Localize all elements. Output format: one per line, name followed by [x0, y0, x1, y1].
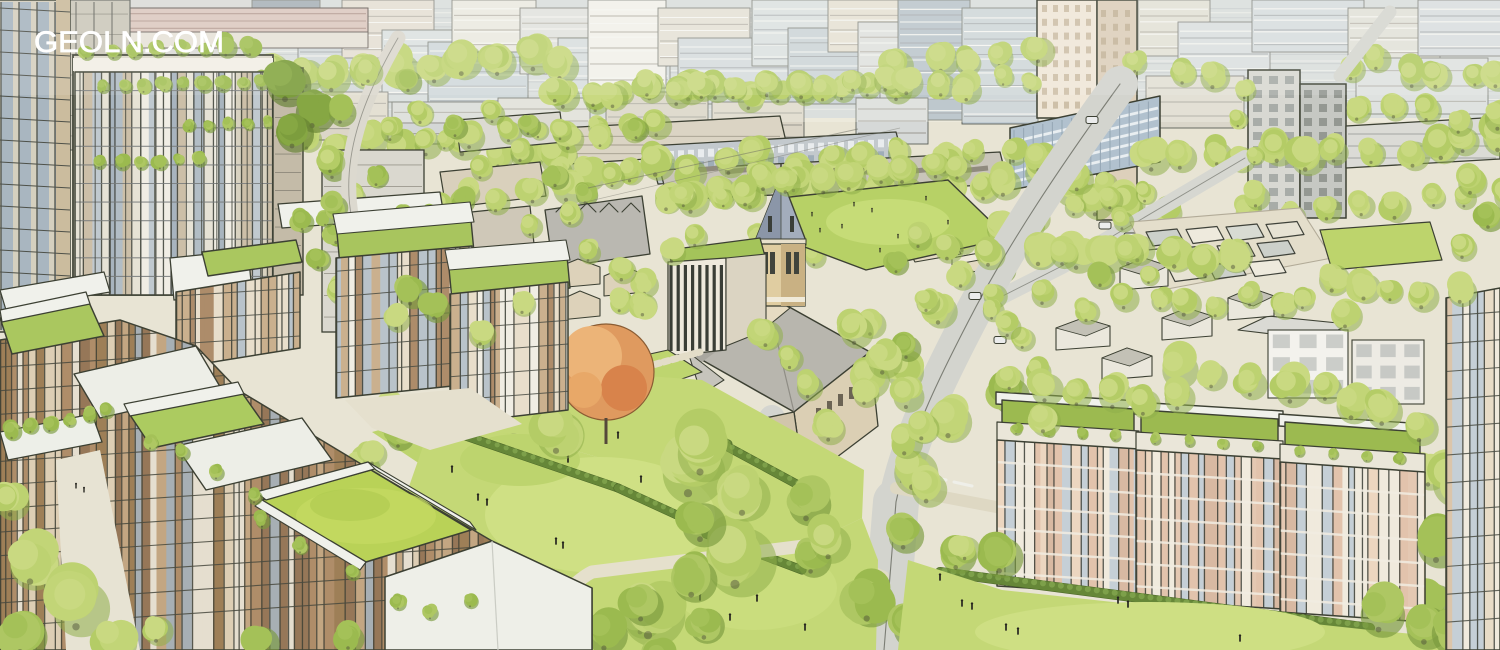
svg-text:GEOLN.COM: GEOLN.COM	[34, 26, 224, 59]
